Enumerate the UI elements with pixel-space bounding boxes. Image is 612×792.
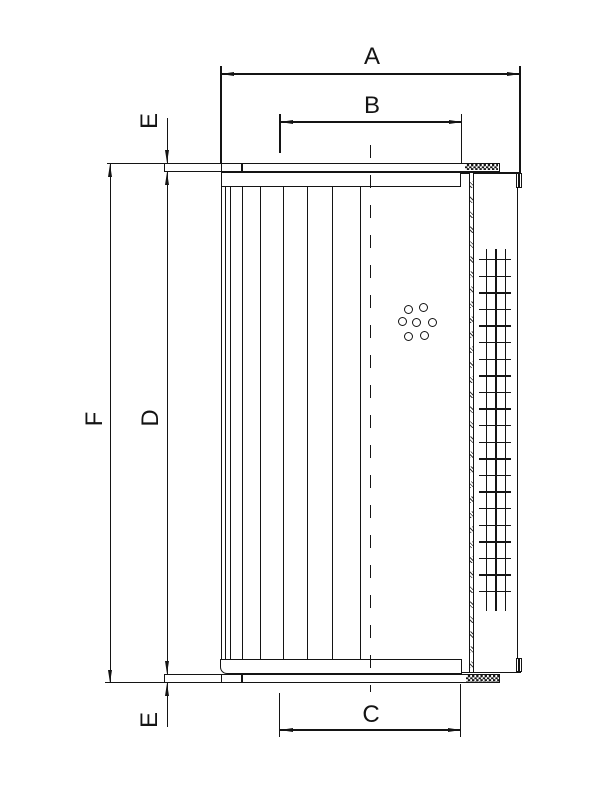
shell-outer-wall: [517, 188, 518, 659]
technical-drawing-canvas: A B C F E D E: [0, 0, 612, 792]
pleat-line: [221, 187, 222, 659]
pleat-line: [307, 187, 308, 659]
perforation-hole: [420, 331, 429, 340]
perforation-hole: [428, 318, 437, 327]
top-end-cap: [221, 172, 462, 187]
bottom-plate-seam-2: [241, 674, 242, 682]
dim-label-e-top: E: [137, 106, 163, 136]
mesh-horizontal-line: [479, 309, 511, 310]
mesh-horizontal-line: [479, 359, 511, 360]
dim-a-arrow-right-icon: [507, 72, 520, 76]
dim-d-arrow-top-icon: [165, 172, 169, 185]
dim-b-arrow-left-icon: [280, 120, 293, 124]
center-tube-seam: [469, 173, 475, 671]
pleat-line: [360, 187, 361, 659]
dim-line-a: [221, 73, 520, 74]
mesh-horizontal-line: [479, 508, 511, 509]
bottom-end-plate: [164, 674, 500, 682]
mesh-horizontal-line: [479, 558, 511, 559]
bottom-plate-seam-1: [221, 674, 222, 682]
mesh-horizontal-line: [479, 458, 511, 459]
top-plate-seam-1: [221, 163, 222, 171]
top-seal-knurl: [465, 164, 498, 170]
ext-line-c-left: [279, 693, 280, 737]
mesh-horizontal-line: [479, 541, 511, 542]
mesh-horizontal-line: [479, 574, 511, 575]
shell-bottom-edge: [461, 672, 521, 673]
dim-a-arrow-left-icon: [221, 72, 234, 76]
mesh-horizontal-line: [479, 325, 511, 326]
bottom-seal-knurl: [466, 675, 499, 682]
mesh-horizontal-line: [479, 292, 511, 293]
dim-b-arrow-right-icon: [449, 120, 462, 124]
mesh-vertical-line: [486, 249, 487, 611]
top-end-plate: [164, 163, 500, 171]
dim-line-c: [280, 729, 461, 730]
shell-bottom-lip-inner-line: [518, 658, 519, 672]
dim-label-e-bottom: E: [137, 705, 163, 735]
mesh-horizontal-line: [479, 375, 511, 376]
ext-line-c-right: [460, 684, 461, 737]
dim-line-f: [110, 163, 111, 682]
perforation-hole: [412, 318, 421, 327]
mesh-horizontal-line: [479, 342, 511, 343]
dim-label-f: F: [82, 404, 108, 434]
dim-d-arrow-bottom-icon: [165, 661, 169, 674]
dim-c-arrow-left-icon: [280, 728, 293, 732]
mesh-horizontal-line: [479, 591, 511, 592]
dim-label-c: C: [356, 702, 386, 728]
dim-c-arrow-right-icon: [448, 728, 461, 732]
mesh-horizontal-line: [479, 525, 511, 526]
mesh-horizontal-line: [479, 276, 511, 277]
pleat-line: [225, 187, 226, 659]
pleat-line: [332, 187, 333, 659]
ext-line-b-left: [279, 114, 280, 153]
mesh-horizontal-line: [479, 425, 511, 426]
mesh-horizontal-line: [479, 491, 511, 492]
dim-e-bottom-arrow-up-icon: [165, 683, 169, 696]
dim-label-d: D: [138, 403, 164, 433]
dim-e-top-arrow-down-icon: [165, 150, 169, 163]
pleat-line: [260, 187, 261, 659]
mesh-vertical-line: [495, 249, 496, 611]
dim-line-b: [280, 121, 462, 122]
mesh-horizontal-line: [479, 475, 511, 476]
perforation-hole: [419, 303, 428, 312]
dim-label-a: A: [357, 44, 387, 70]
pleat-line: [283, 187, 284, 659]
ext-line-a-left: [220, 66, 221, 164]
dim-label-b: B: [357, 93, 387, 119]
ext-line-a-right: [519, 66, 520, 173]
pleat-line: [242, 187, 243, 659]
dim-f-arrow-bottom-icon: [108, 670, 112, 683]
top-plate-seam-2: [241, 163, 242, 171]
mesh-horizontal-line: [479, 442, 511, 443]
mesh-horizontal-line: [479, 408, 511, 409]
centerline: [370, 145, 371, 692]
perforation-hole: [398, 317, 407, 326]
perforation-hole: [404, 332, 413, 341]
mesh-vertical-line: [505, 249, 506, 611]
ext-line-f-bottom: [105, 682, 165, 683]
dim-f-arrow-top-icon: [108, 164, 112, 177]
ext-line-f-top: [107, 163, 165, 164]
perforation-hole: [404, 305, 413, 314]
dim-line-d: [167, 172, 168, 675]
mesh-horizontal-line: [479, 392, 511, 393]
mesh-horizontal-line: [479, 259, 511, 260]
shell-top-lip-inner-line: [518, 173, 519, 188]
pleat-line: [230, 187, 231, 659]
bottom-end-cap: [220, 659, 462, 675]
